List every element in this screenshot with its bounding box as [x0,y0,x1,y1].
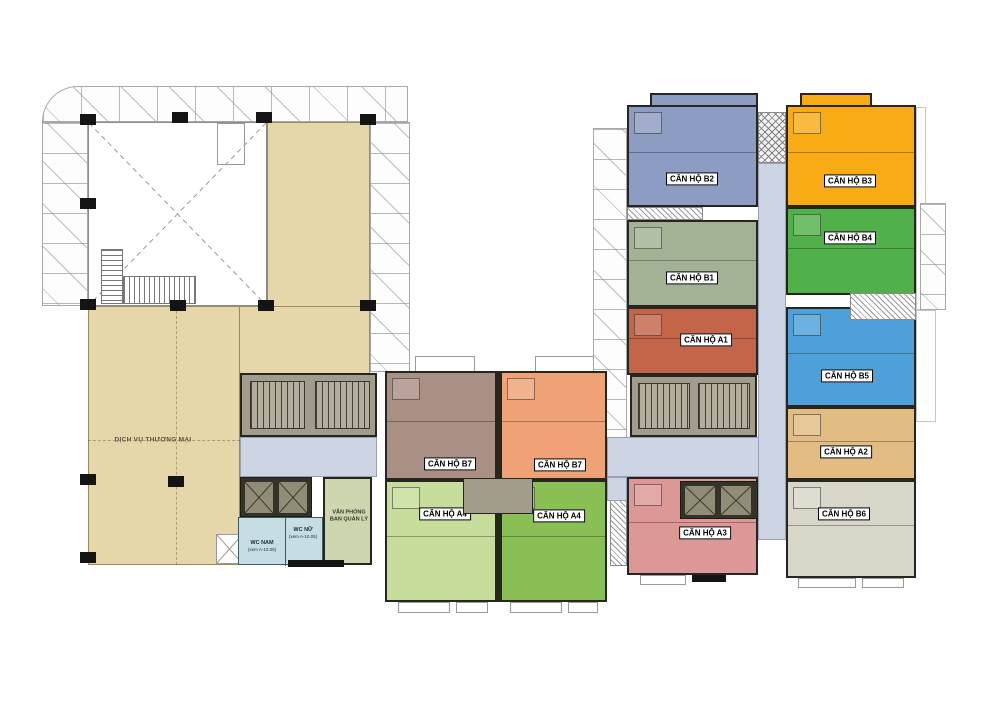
elevator-cross-icon [245,482,273,513]
column-marker [80,552,96,563]
column-marker [80,114,96,125]
corridor-left [240,437,377,477]
balcony-tab [456,602,488,613]
unit-can-ho-b1[interactable]: CĂN HỘ B1 [627,220,758,307]
unit-can-ho-b7-right[interactable]: CĂN HỘ B7 [500,371,607,480]
column-marker [172,112,188,123]
column-marker [256,112,272,123]
hatched-strip [627,207,703,220]
floor-plan-canvas: DỊCH VỤ THƯƠNG MẠI [0,0,1000,706]
unit-label: CĂN HỘ B7 [424,457,476,470]
corridor-vertical [758,163,786,540]
elevator-shaft [279,482,307,513]
stairwell [638,383,690,429]
wall-segment [692,575,726,582]
wc-nu-label: WC NỮ (xem A-10.05) [289,527,317,539]
wc-partition [285,518,286,566]
stairwell [315,381,370,429]
balcony-tab [398,602,450,613]
unit-can-ho-b7-left[interactable]: CĂN HỘ B7 [385,371,497,480]
balcony-tab [510,602,562,613]
commercial-zone-upper [267,122,370,310]
corridor-stub [607,477,627,501]
elevator-cross-icon [685,486,715,515]
management-office-label: VĂN PHÒNG BAN QUẢN LÝ [330,510,368,525]
elevator-bank-right [680,481,758,519]
unit-label: CĂN HỘ B2 [666,172,718,185]
stair-core-left [240,373,377,437]
unit-label: CĂN HỘ B7 [534,458,586,471]
facade-band [916,310,936,422]
unit-label: CĂN HỘ A2 [820,445,872,458]
elevator-cross-icon [279,482,307,513]
stair-core-right [630,375,757,437]
curtain-wall-inner-right [370,122,410,372]
wc-nam-text: WC NAM [250,540,273,546]
unit-label: CĂN HỘ B3 [824,174,876,187]
commercial-zone-lower [88,306,240,565]
unit-label: CĂN HỘ B5 [821,369,873,382]
wc-nam-label: WC NAM (xem A-10.05) [248,540,276,552]
bathroom-pod [463,478,533,514]
balcony-tab [640,575,686,585]
column-marker [80,474,96,485]
column-marker [80,198,96,209]
office-label-line2: BAN QUẢN LÝ [330,517,368,524]
elevator-cross-icon [721,486,751,515]
shaft-crosshatch [758,112,786,163]
atrium-stair-flight-vertical [101,249,123,304]
unit-label: CĂN HỘ B1 [666,271,718,284]
wc-area: WC NAM (xem A-10.05) WC NỮ (xem A-10.05) [238,517,323,565]
atrium-void [88,122,267,306]
stairwell [698,383,750,429]
unit-label: CĂN HỘ B6 [818,507,870,520]
unit-can-ho-a1[interactable]: CĂN HỘ A1 [627,307,758,375]
unit-can-ho-b3[interactable]: CĂN HỘ B3 [786,105,916,207]
unit-can-ho-b2[interactable]: CĂN HỘ B2 [627,105,758,207]
wc-nu-text: WC NỮ [293,527,312,533]
curtain-wall-wing-right [920,203,946,310]
commercial-zone-label: DỊCH VỤ THƯƠNG MẠI [114,437,191,444]
wc-nu-note: (xem A-10.05) [289,534,317,539]
elevator-bank-left [240,477,312,517]
elevator-shaft [245,482,273,513]
column-marker [360,114,376,125]
unit-can-ho-a3[interactable]: CĂN HỘ A3 [627,477,758,575]
column-marker [168,476,184,487]
curtain-wall-top [42,86,408,122]
wall-segment [288,560,344,567]
unit-label: CĂN HỘ A3 [679,526,731,539]
hatched-strip [610,500,627,566]
column-marker [170,300,186,311]
balcony-tab [568,602,598,613]
balcony-tab [415,356,475,372]
grid-centerline-vertical [176,306,177,565]
elevator-shaft [685,486,715,515]
column-marker [258,300,274,311]
management-office: VĂN PHÒNG BAN QUẢN LÝ [323,477,372,565]
wc-nam-note: (xem A-10.05) [248,547,276,552]
balcony-tab [798,578,856,588]
column-marker [80,299,96,310]
unit-can-ho-b5[interactable]: CĂN HỘ B5 [786,307,916,407]
unit-can-ho-a2[interactable]: CĂN HỘ A2 [786,407,916,480]
unit-label: CĂN HỘ A1 [680,333,732,346]
unit-label: CĂN HỘ A4 [533,509,585,522]
stairwell [250,381,305,429]
balcony-tab [862,578,904,588]
column-marker [360,300,376,311]
hatched-strip [850,293,916,320]
elevator-shaft [721,486,751,515]
unit-can-ho-b4[interactable]: CĂN HỘ B4 [786,207,916,295]
balcony-tab [535,356,597,372]
curtain-wall-left [42,122,88,306]
unit-can-ho-b6[interactable]: CĂN HỘ B6 [786,480,916,578]
unit-label: CĂN HỘ B4 [824,231,876,244]
void-duct [217,123,245,165]
